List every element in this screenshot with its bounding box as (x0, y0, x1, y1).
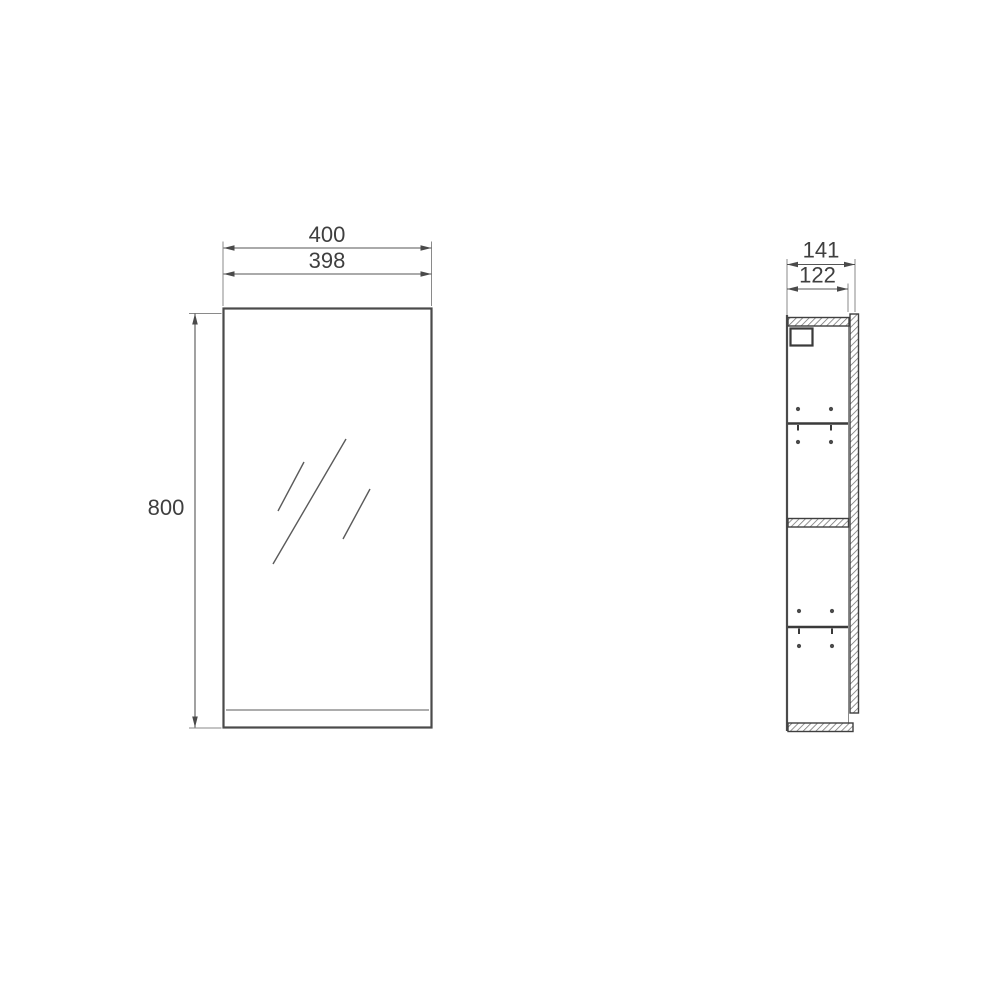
shelf-pin-hole (796, 407, 800, 411)
arrow-left-icon (787, 262, 798, 268)
dimension-depth-inner: 122 (787, 263, 848, 292)
shelf-pin-hole (829, 440, 833, 444)
fixed-shelf-section (788, 519, 849, 528)
cabinet-front-outline (224, 309, 432, 728)
arrow-left-icon (224, 245, 235, 251)
front-view: 400 398 800 (148, 222, 432, 728)
adjustable-shelf-lower (788, 609, 848, 648)
technical-drawing-svg: 400 398 800 (0, 0, 1000, 1000)
shelf-pin-hole (797, 644, 801, 648)
arrow-down-icon (192, 717, 198, 728)
side-view: 141 122 (787, 238, 859, 732)
shelf-pin-hole (830, 644, 834, 648)
adjustable-shelf-upper (788, 407, 848, 444)
shelf-pin-hole (829, 407, 833, 411)
drawing-canvas: 400 398 800 (0, 0, 1000, 1000)
arrow-left-icon (224, 271, 235, 277)
dimension-label-800: 800 (148, 495, 185, 520)
mirror-glint-line (343, 489, 370, 539)
shelf-pin-hole (797, 609, 801, 613)
arrow-right-icon (421, 245, 432, 251)
mirror-door-section (850, 314, 859, 713)
shelf-pin-hole (830, 609, 834, 613)
arrow-right-icon (837, 286, 848, 292)
bottom-panel-section (788, 723, 853, 732)
dimension-label-122: 122 (799, 263, 836, 288)
dimension-label-141: 141 (803, 238, 840, 263)
dimension-height: 800 (148, 314, 222, 729)
mirror-glint-line (278, 462, 304, 511)
arrow-right-icon (844, 262, 855, 268)
arrow-left-icon (787, 286, 798, 292)
arrow-right-icon (421, 271, 432, 277)
dimension-width-outer: 400 (224, 222, 432, 251)
shelf-pin-hole (796, 440, 800, 444)
dimension-label-400: 400 (309, 222, 346, 247)
mounting-bracket (791, 329, 813, 346)
arrow-up-icon (192, 314, 198, 325)
mirror-glint-line (273, 439, 346, 564)
dimension-label-398: 398 (309, 248, 346, 273)
top-panel-section (788, 318, 849, 327)
dimension-width-inner: 398 (224, 248, 432, 277)
